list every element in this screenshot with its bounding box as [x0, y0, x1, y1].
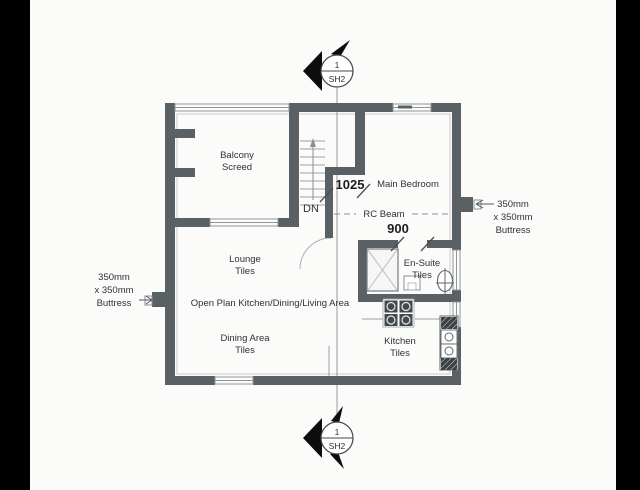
dining-finish-label: Tiles — [235, 345, 255, 356]
floorplan-scan: 1 SH2 1 SH2 Balcony Screed Main Bedroom … — [0, 0, 640, 490]
lounge-label: Lounge — [229, 254, 261, 265]
stair-down-label: DN — [303, 203, 319, 215]
wall-ensuite-left — [358, 240, 367, 302]
section-sheet-number: SH2 — [329, 441, 346, 451]
dim-1025-label: 1025 — [336, 177, 365, 192]
open-plan-label: Open Plan Kitchen/Dining/Living Area — [191, 298, 350, 309]
section-detail-number: 1 — [335, 427, 340, 437]
ensuite-right-window — [453, 250, 460, 290]
balcony-pier-lower — [175, 168, 195, 177]
sink-unit — [440, 316, 458, 370]
dim-900-label: 900 — [387, 221, 409, 236]
ensuite-finish-label: Tiles — [412, 270, 432, 281]
balcony-sliding-door — [210, 219, 278, 226]
wall-balcony-bottom-stub-left — [165, 218, 210, 227]
balcony-label: Balcony — [220, 150, 254, 161]
wall-ensuite-top-right — [427, 240, 461, 248]
wall-stair-right-upper — [355, 112, 365, 172]
balcony-finish-label: Screed — [222, 162, 252, 173]
bottom-wall-window — [215, 377, 253, 384]
dining-label: Dining Area — [220, 333, 270, 344]
section-sheet-number: SH2 — [329, 74, 346, 84]
balcony-pier-upper — [175, 129, 195, 138]
main-bedroom-label: Main Bedroom — [377, 179, 439, 190]
balcony-railing-window — [175, 104, 289, 111]
section-detail-number: 1 — [335, 60, 340, 70]
wall-stair-lower — [325, 167, 333, 238]
wall-right-upper — [452, 103, 461, 250]
wall-top-middle — [289, 103, 393, 112]
buttress-right-block — [461, 197, 473, 212]
shower-tray — [367, 249, 398, 291]
floorplan-drawing: 1 SH2 1 SH2 Balcony Screed Main Bedroom … — [0, 0, 640, 490]
buttress-right-label-3: Buttress — [496, 225, 531, 236]
wall-balcony-right — [289, 103, 299, 227]
buttress-left-label-2: x 350mm — [94, 285, 133, 296]
hob-cooker — [383, 299, 414, 327]
ensuite-label: En-Suite — [404, 258, 440, 269]
wall-bottom-right — [253, 376, 461, 385]
wall-left — [165, 103, 175, 385]
lounge-finish-label: Tiles — [235, 266, 255, 277]
wall-balcony-bottom-stub-right — [278, 218, 289, 227]
kitchen-label: Kitchen — [384, 336, 416, 347]
buttress-left-label-1: 350mm — [98, 272, 130, 283]
rc-beam-label: RC Beam — [363, 209, 404, 220]
buttress-right-label-2: x 350mm — [493, 212, 532, 223]
wall-bottom-left — [165, 376, 215, 385]
buttress-right-label-1: 350mm — [497, 199, 529, 210]
kitchen-finish-label: Tiles — [390, 348, 410, 359]
buttress-left-block — [152, 292, 165, 307]
bedroom-top-window — [393, 104, 431, 111]
buttress-left-label-3: Buttress — [97, 298, 132, 309]
